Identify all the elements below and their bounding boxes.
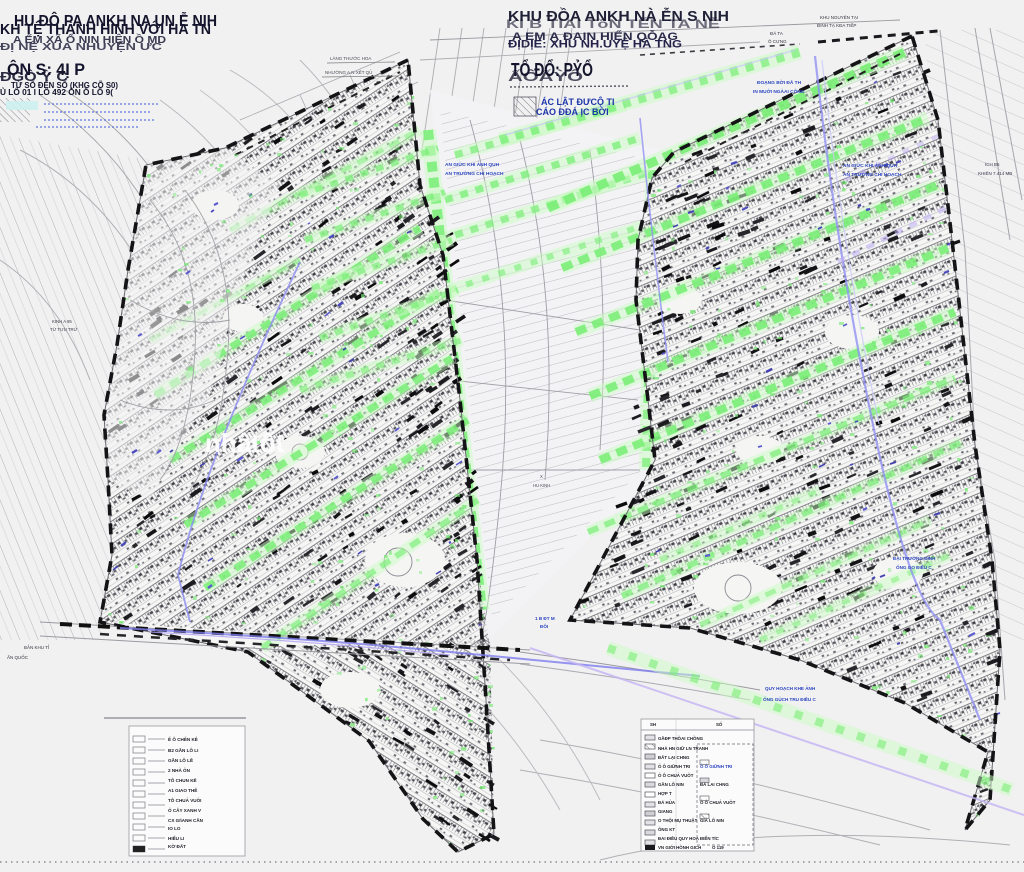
svg-text:HU KINH: HU KINH <box>533 483 550 488</box>
svg-text:KỜ ĐẤT: KỜ ĐẤT <box>168 842 186 849</box>
svg-text:Ô CƯNG: Ô CƯNG <box>768 38 787 44</box>
svg-text:O THỘI MỤ THUẬT: O THỘI MỤ THUẬT <box>658 818 698 823</box>
svg-text:B2 GẦN LÔ LI: B2 GẦN LÔ LI <box>168 746 198 753</box>
svg-text:BẢN KHU TỈ: BẢN KHU TỈ <box>24 644 50 650</box>
svg-text:X: X <box>540 474 543 479</box>
svg-text:CX GI\ANH CẦN: CX GI\ANH CẦN <box>168 817 204 823</box>
svg-text:Ỏ Ô CHUẢ VUỖT: Ỏ Ô CHUẢ VUỖT <box>658 773 694 778</box>
svg-text:ĐỊDỊE: XHU NH.UYỆ HÀ TNG: ĐỊDỊE: XHU NH.UYỆ HÀ TNG <box>508 38 682 51</box>
svg-text:ÁC LẬT ĐƯCỘ TI: ÁC LẬT ĐƯCỘ TI <box>541 96 614 107</box>
svg-text:HIỂU LI: HIỂU LI <box>168 835 184 841</box>
svg-text:TÔ CHUẢ VUỖI: TÔ CHUẢ VUỖI <box>168 796 201 803</box>
svg-text:2 NHÀ ỖN: 2 NHÀ ỖN <box>168 767 191 773</box>
svg-text:ỒNG KT: ỒNG KT <box>658 827 675 832</box>
svg-text:TỪ TƯU TRỨ: TỪ TƯU TRỨ <box>50 327 78 332</box>
svg-text:ĐẤT LẠI CHNG: ĐẤT LẠI CHNG <box>658 755 690 760</box>
svg-text:KI B TIAI TồN TỄN TA NỄ: KI B TIAI TồN TỄN TA NỄ <box>506 16 720 31</box>
svg-text:ÍCH B5: ÍCH B5 <box>985 161 1000 167</box>
svg-text:ỐNG GỦCH TRU ĐIỀU C: ỐNG GỦCH TRU ĐIỀU C <box>763 696 817 702</box>
svg-text:GẦĐP THỒAI CHỒNG: GẦĐP THỒAI CHỒNG <box>658 736 704 741</box>
svg-text:ẤN QUỐC: ẤN QUỐC <box>7 654 29 660</box>
svg-text:NHÀ HN GIỮ LN TRANH: NHÀ HN GIỮ LN TRANH <box>658 746 708 751</box>
svg-text:VN GIỚI HỒNH GICH: VN GIỚI HỒNH GICH <box>658 845 701 850</box>
svg-text:GẦN LÔ NIN: GẦN LÔ NIN <box>658 782 684 787</box>
svg-text:ĐỊ NỆ XUA NHUYỆN ƯC: ĐỊ NỆ XUA NHUYỆN ƯC <box>0 40 162 53</box>
svg-text:NHƯỜNG A.N XẾT QỦ: NHƯỜNG A.N XẾT QỦ <box>325 69 372 75</box>
svg-text:Ỗ CÂY XANH V: Ỗ CÂY XANH V <box>168 807 202 813</box>
svg-text:SH: SH <box>650 722 656 727</box>
svg-text:SỐ: SỐ <box>716 722 723 727</box>
svg-text:Ồ 119: Ồ 119 <box>712 845 724 850</box>
svg-text:KHU NGUYÊN TẠI: KHU NGUYÊN TẠI <box>820 13 858 20</box>
svg-text:GIANG: GIANG <box>658 809 673 814</box>
svg-text:HỢP T: HỢP T <box>658 791 672 796</box>
svg-text:AN GIỪC KHI ẢNH QUH: AN GIỪC KHI ẢNH QUH <box>445 161 500 168</box>
svg-text:ĐAI ĐIỀU QUY HOA: ĐAI ĐIỀU QUY HOA <box>658 836 700 841</box>
svg-text:QUY HOẠCH KHE ẢNH: QUY HOẠCH KHE ẢNH <box>765 685 816 691</box>
svg-text:GẦN LÔ LỀ: GẦN LÔ LỀ <box>168 756 193 763</box>
svg-text:ĐÁ HỦA: ĐÁ HỦA <box>658 800 676 805</box>
svg-text:ỐNG GO ĐIỀU C: ỐNG GO ĐIỀU C <box>896 564 932 570</box>
svg-text:Ễ Ô CHỄN KỄ: Ễ Ô CHỄN KỄ <box>168 735 198 742</box>
svg-text:IO LO: IO LO <box>168 826 181 831</box>
svg-text:KHIÊN 7.414 MB: KHIÊN 7.414 MB <box>978 169 1012 176</box>
svg-text:Ỏ Ô GIỮNH TRI: Ỏ Ô GIỮNH TRI <box>658 764 690 769</box>
svg-text:Ủ LÔ 01 I LÔ 492 ÔN Ồ LÔ 9(: Ủ LÔ 01 I LÔ 492 ÔN Ồ LÔ 9( <box>0 87 113 97</box>
svg-text:ĐẠI TRƯỜNG ĐÌNH: ĐẠI TRƯỜNG ĐÌNH <box>893 554 936 561</box>
svg-text:ĐINH TẠ KĐA TIẾP: ĐINH TẠ KĐA TIẾP <box>817 22 856 28</box>
svg-text:CÁO ĐĐÁ ỊC BỜI: CÁO ĐĐÁ ỊC BỜI <box>536 106 609 117</box>
svg-text:LÀNG THƯỚC HOA: LÀNG THƯỚC HOA <box>330 55 371 61</box>
svg-text:1 B ĐT M: 1 B ĐT M <box>535 616 555 621</box>
svg-text:KINH A 95: KINH A 95 <box>52 319 72 324</box>
svg-text:ĐÁ TA: ĐÁ TA <box>770 30 783 36</box>
svg-text:TÔ CHUN KẾ: TÔ CHUN KẾ <box>168 776 197 783</box>
svg-text:ĐÔI: ĐÔI <box>540 622 548 629</box>
svg-text:nhấtốt: nhấtốt <box>205 428 285 458</box>
svg-text:A1 GIAO THÊ: A1 GIAO THÊ <box>168 786 197 793</box>
svg-text:ĐIỂN TÍC: ĐIỂN TÍC <box>700 836 720 841</box>
svg-text:AN GIỪC KHI ẢNH QUH: AN GIỪC KHI ẢNH QUH <box>843 162 898 169</box>
svg-text:ẤÔẤỲÔ: ẤÔẤỲÔ <box>508 69 583 84</box>
